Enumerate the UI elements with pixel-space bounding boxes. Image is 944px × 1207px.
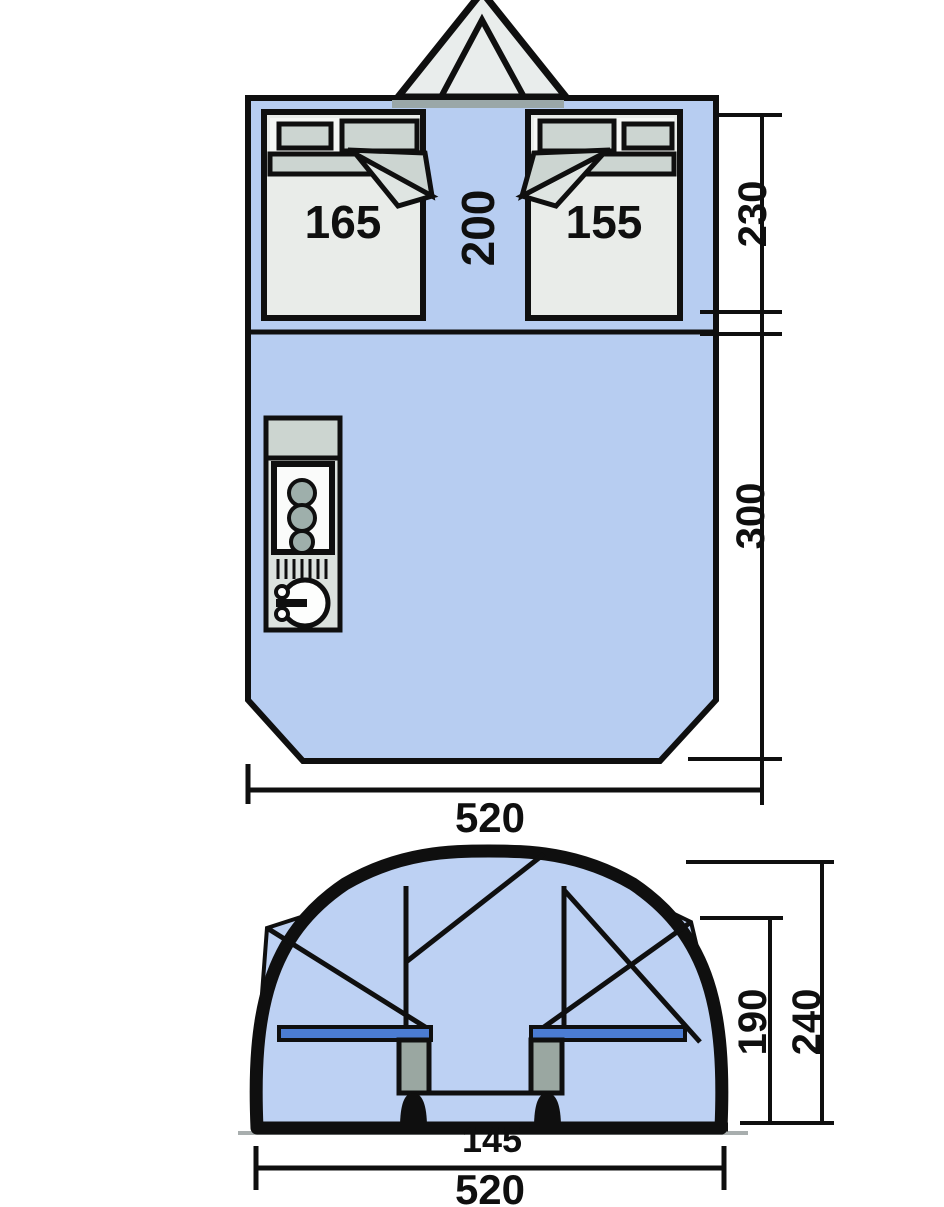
dim-label-total-height: 240 (785, 989, 829, 1056)
stove-burner-icon (291, 531, 313, 553)
drain-rack-icon (278, 559, 326, 579)
corridor-depth-label: 200 (452, 190, 504, 267)
diagram-canvas: 165 155 200 (0, 0, 944, 1207)
cabin-left-width-label: 165 (305, 196, 382, 248)
stove-burner-icon (289, 480, 315, 506)
stove-burner-icon (289, 505, 315, 531)
floorplan-view: 165 155 200 (248, 0, 782, 841)
bed-leg-right (531, 1040, 562, 1093)
kitchen-unit (266, 418, 340, 630)
dim-label-elevation-width: 520 (455, 1166, 525, 1207)
sleeping-cabin-left: 165 (264, 112, 432, 318)
bed-leg-left (399, 1040, 429, 1093)
pillow-large-right (540, 121, 614, 151)
sleeping-cabin-right: 155 (522, 112, 680, 318)
dim-label-living-depth: 300 (729, 483, 773, 550)
dim-label-inner-height: 190 (731, 989, 775, 1056)
sink-icon (276, 580, 328, 626)
dim-label-sleep-depth: 230 (731, 181, 775, 248)
pillow-small-right (624, 124, 672, 148)
dim-label-floorplan-width: 520 (455, 794, 525, 841)
entrance-threshold (392, 100, 564, 108)
kitchen-worktop (266, 418, 340, 458)
dim-label-inner-width: 145 (462, 1119, 522, 1160)
pillow-large-left (342, 121, 417, 151)
elevation-view: 190 240 145 520 (238, 851, 834, 1207)
pillow-small-left (279, 124, 331, 148)
tent-diagram: 165 155 200 (0, 0, 944, 1207)
cabin-right-width-label: 155 (566, 196, 643, 248)
